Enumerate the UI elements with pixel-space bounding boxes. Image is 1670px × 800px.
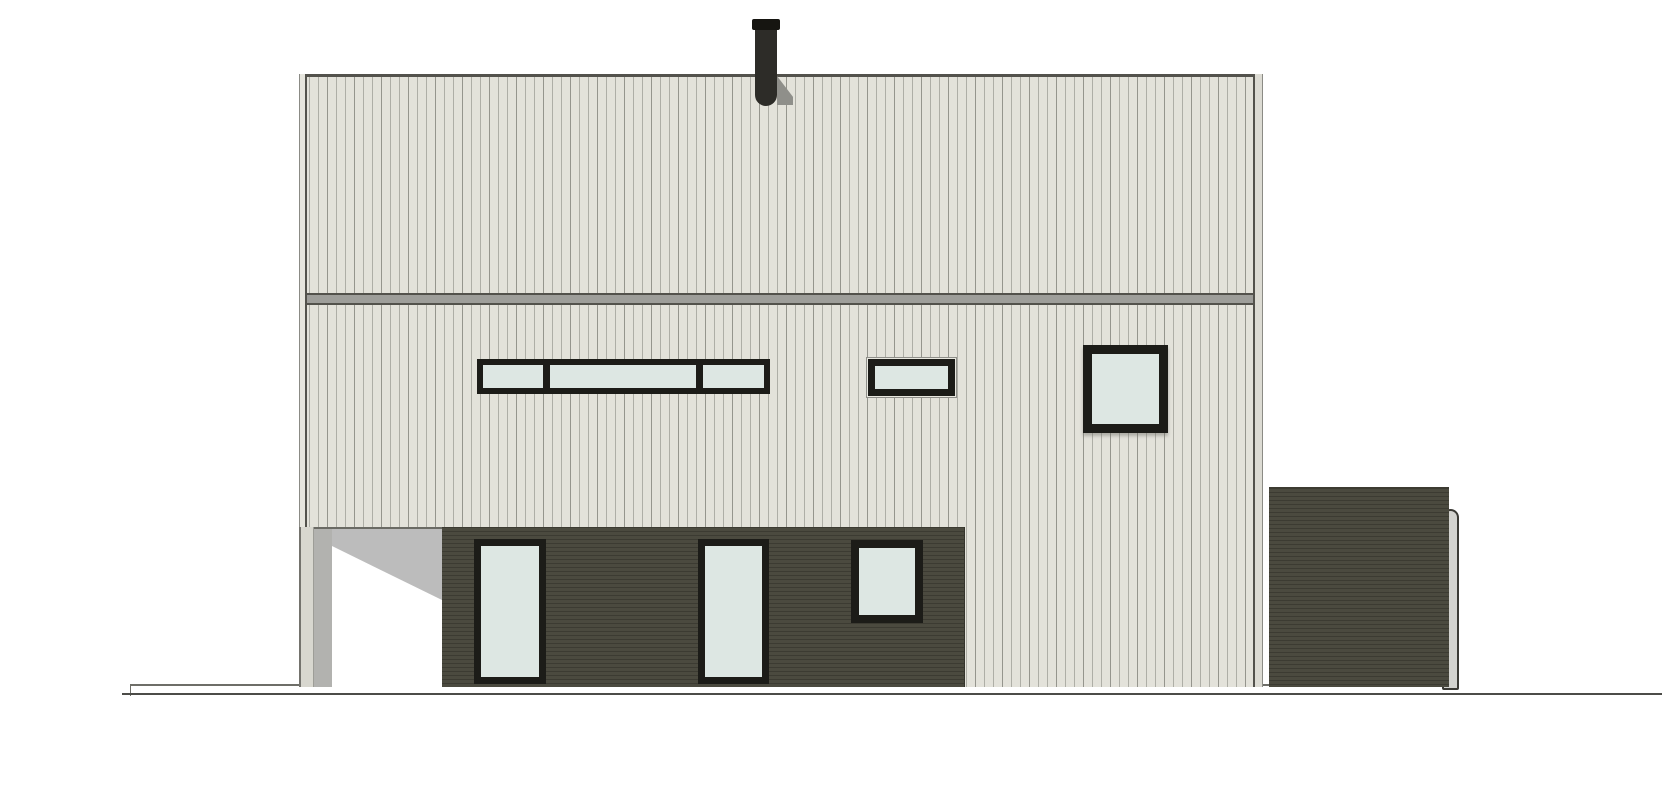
roof-edge [300, 74, 1263, 77]
tall-window-1 [474, 539, 546, 684]
corner-board-left [299, 74, 307, 527]
small-window [866, 357, 957, 398]
elevation-drawing [0, 0, 1670, 800]
ribbon-window [477, 359, 770, 394]
carport-opening [313, 527, 442, 687]
glass-pane [1092, 354, 1159, 424]
porch-column [299, 527, 314, 687]
dark-cladding-section [442, 527, 965, 687]
square-window-upper [1083, 345, 1168, 433]
glass-pane [875, 366, 948, 389]
corner-board-right [1253, 74, 1263, 687]
chimney-cap [752, 19, 780, 30]
annex-volume [1269, 487, 1449, 687]
glass-pane [481, 546, 539, 677]
glass-pane [483, 365, 543, 388]
chimney-shadow [777, 76, 793, 105]
column-shadow [313, 529, 332, 687]
glass-pane [705, 546, 762, 677]
glass-pane [550, 365, 696, 388]
belt-band [300, 293, 1263, 305]
tall-window-2 [698, 539, 769, 684]
ground-line [122, 693, 1662, 695]
square-window-lower [851, 540, 923, 623]
glass-pane [703, 365, 764, 388]
glass-pane [859, 548, 915, 615]
ceiling-shadow [332, 529, 442, 600]
main-building [300, 74, 1263, 687]
chimney [755, 30, 777, 106]
